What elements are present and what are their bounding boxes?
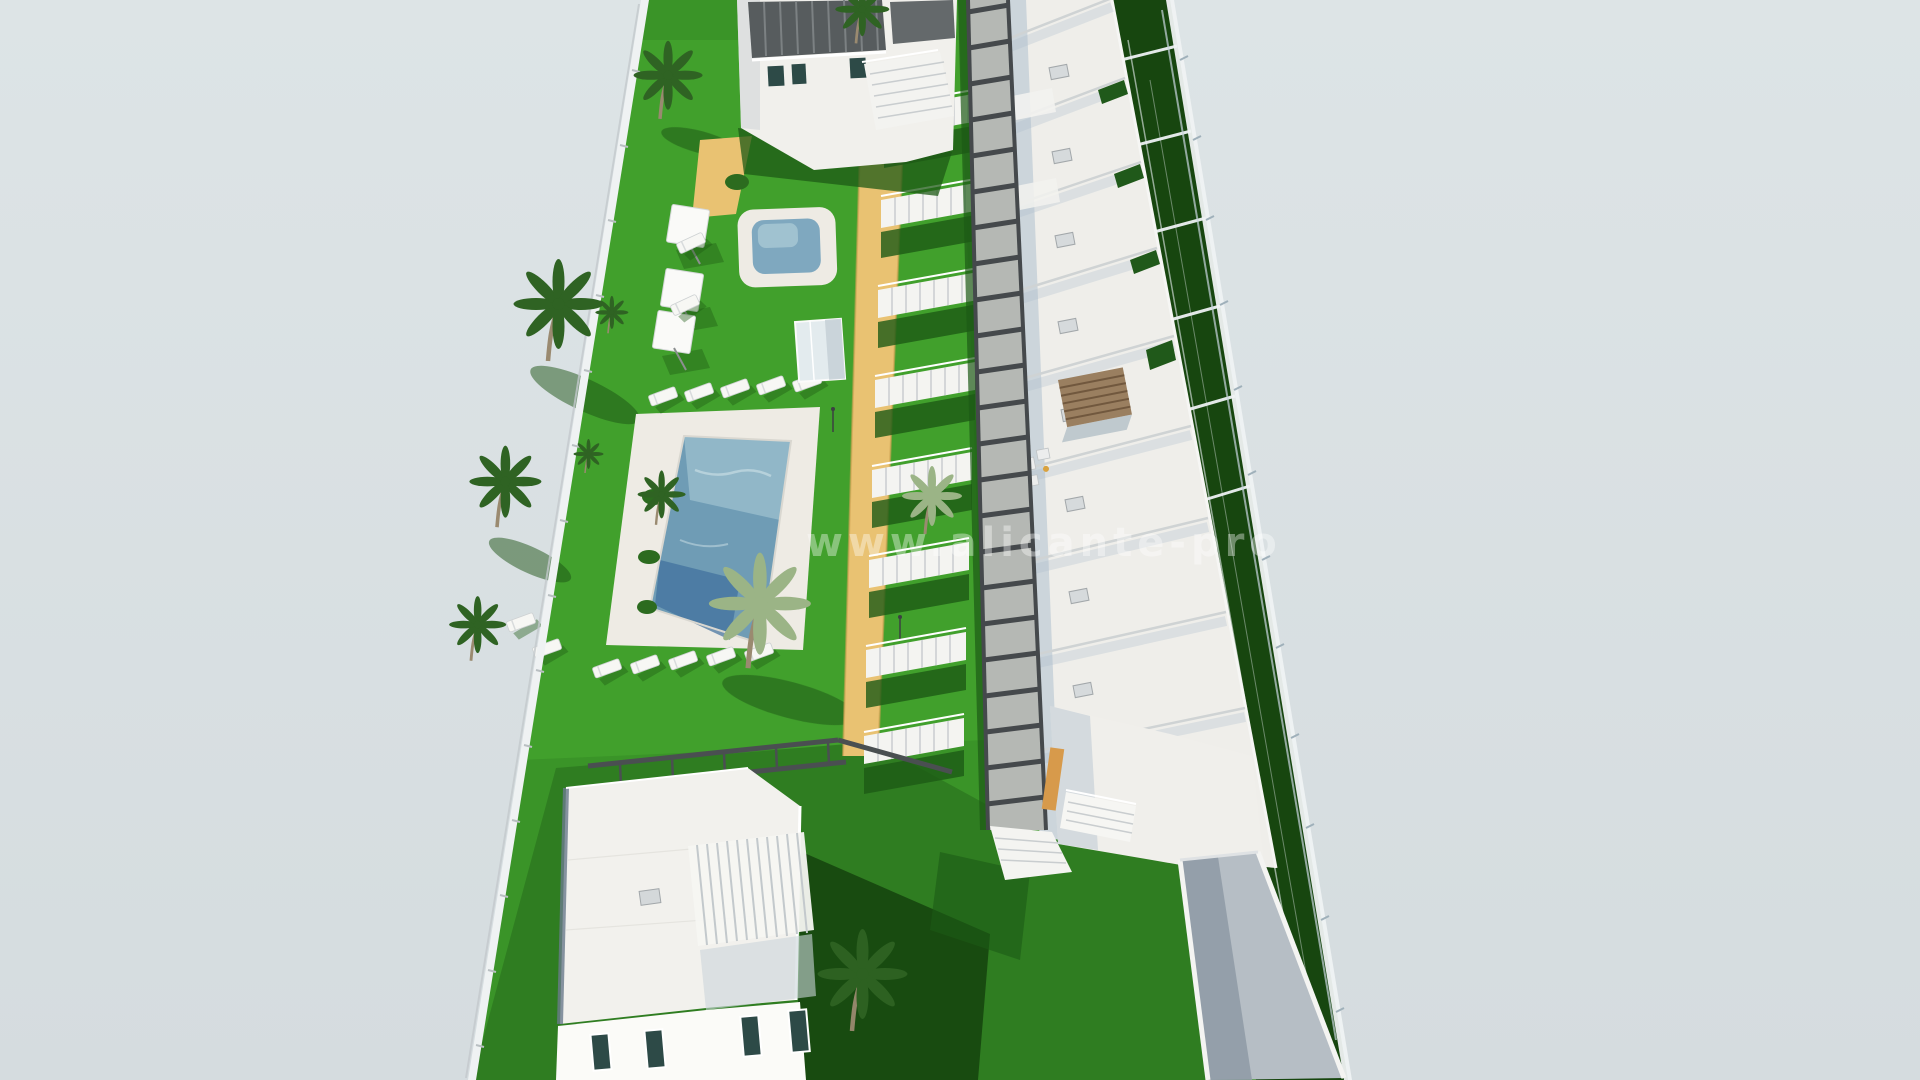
kids-pool [737, 207, 838, 288]
clubhouse-building [737, 0, 957, 196]
watermark: www.alicante-pro [806, 520, 1282, 566]
main-pool [606, 407, 820, 650]
glass-cabin [795, 319, 845, 382]
villa-slat-pergola [688, 832, 814, 946]
villa-ac-unit [639, 889, 661, 906]
property-aerial-render: www.alicante-pro [0, 0, 1920, 1080]
